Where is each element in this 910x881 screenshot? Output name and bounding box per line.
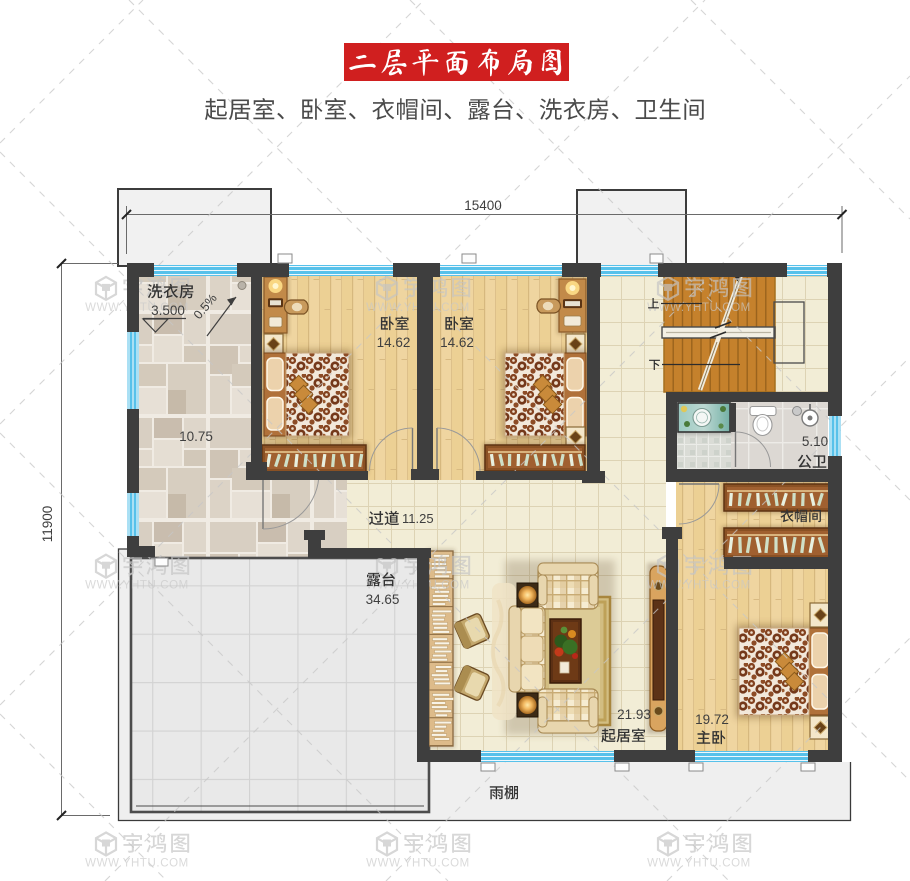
svg-text:WWW.YHTU.COM: WWW.YHTU.COM [366,858,470,870]
svg-text:14.62: 14.62 [440,335,474,350]
svg-text:WWW.YHTU.COM: WWW.YHTU.COM [647,580,751,592]
svg-text:21.93: 21.93 [617,707,651,722]
svg-text:5.10: 5.10 [802,434,828,449]
svg-text:11900: 11900 [40,506,55,543]
svg-text:14.62: 14.62 [377,335,411,350]
svg-text:3.500: 3.500 [151,303,185,318]
svg-text:WWW.YHTU.COM: WWW.YHTU.COM [85,858,189,870]
svg-text:WWW.YHTU.COM: WWW.YHTU.COM [85,580,189,592]
svg-text:WWW.YHTU.COM: WWW.YHTU.COM [647,858,751,870]
svg-text:19.72: 19.72 [695,712,729,727]
svg-text:11.25: 11.25 [402,511,434,526]
svg-text:34.65: 34.65 [366,592,400,607]
svg-text:10.75: 10.75 [179,429,213,444]
svg-text:15400: 15400 [464,198,502,213]
